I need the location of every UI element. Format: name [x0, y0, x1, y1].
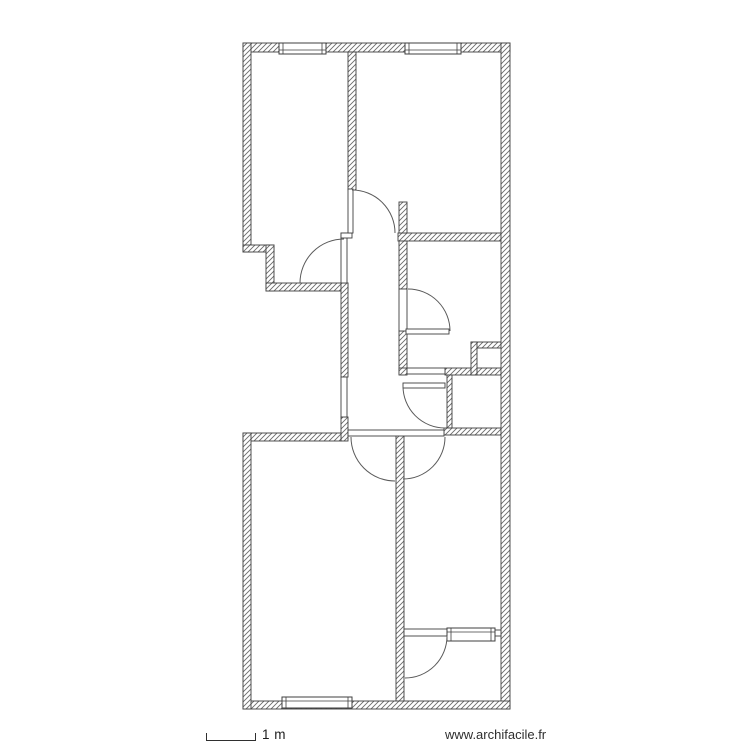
- wall-right-exterior: [501, 43, 510, 709]
- wall-corridor-left-upper: [341, 283, 348, 377]
- website-text: www.archifacile.fr: [445, 727, 546, 742]
- wall-left-lower-exterior: [243, 433, 251, 709]
- wall-bottomleft-room-top: [243, 433, 341, 441]
- door-arc-topleft-room: [300, 239, 344, 283]
- door-arc-corridor-top: [352, 190, 395, 233]
- floor-plan-canvas: [0, 0, 750, 750]
- scale-label: 1 m: [262, 727, 286, 742]
- wall-mid-horizontal2-left: [399, 368, 407, 375]
- wall-bottomright-divider-thin: [404, 629, 447, 636]
- wall-corridor-right-upper: [399, 241, 407, 289]
- wall-closet-bottom: [444, 428, 501, 435]
- wall-closet-left: [447, 375, 452, 428]
- door2-leaf: [348, 189, 353, 233]
- corridor-top-connector: [341, 233, 352, 238]
- door1-leaf: [341, 233, 347, 283]
- door4-leaf: [403, 383, 445, 388]
- walls-layer: [243, 43, 510, 709]
- wall-bottom-rooms-divider: [396, 435, 404, 709]
- door-arc-bottomleft-room: [351, 437, 395, 481]
- door3-opening-line: [399, 289, 407, 331]
- door-arc-bottomfarright-room: [405, 636, 447, 678]
- door-arc-midright-room: [408, 289, 450, 331]
- wall-bottomright-divider-bit: [495, 630, 501, 636]
- floor-plan-page: 1 m www.archifacile.fr: [0, 0, 750, 750]
- hall-door-wall-line: [348, 430, 444, 436]
- window-bottom: [282, 697, 352, 708]
- window-top-right: [405, 43, 461, 54]
- wall-corridor-left-lower: [341, 417, 348, 441]
- door-arc-midbottom-area: [403, 386, 445, 428]
- wall-left-upper-exterior: [243, 43, 251, 252]
- door3-leaf: [406, 329, 449, 334]
- wall-topleft-room-bottom: [266, 283, 348, 291]
- wall-mid-horizontal-upper: [398, 233, 501, 241]
- window-top-left: [279, 43, 326, 54]
- scale-bar: [206, 733, 256, 741]
- window-interior-bottomright: [447, 628, 495, 641]
- door4-opening-line: [407, 368, 445, 374]
- wall-corridor-left-thin: [341, 377, 347, 417]
- wall-corridor-right-stub: [399, 202, 407, 233]
- wall-top-rooms-divider: [348, 52, 356, 190]
- wall-corridor-right-lower: [399, 331, 407, 374]
- wall-shaft-left: [471, 342, 477, 375]
- windows-layer: [279, 43, 495, 708]
- door-arc-bottomright-room: [403, 437, 445, 479]
